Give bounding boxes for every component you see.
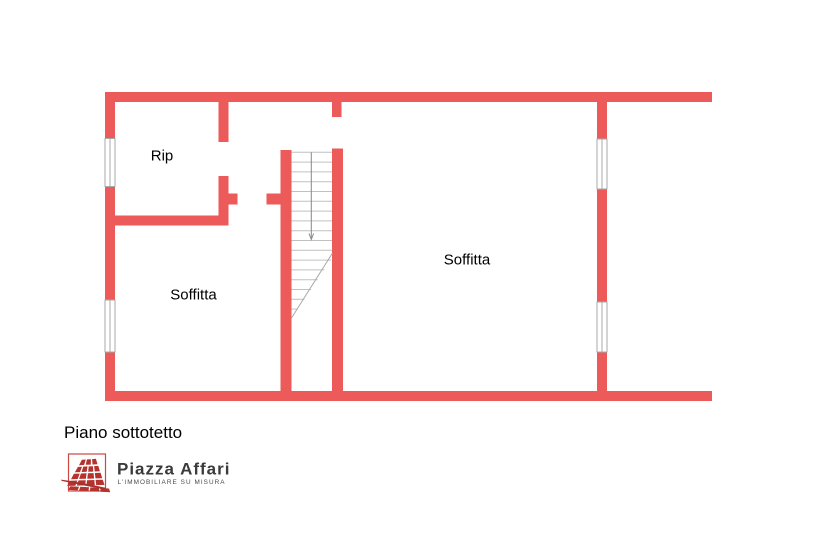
svg-text:L'IMMOBILIARE SU MISURA: L'IMMOBILIARE SU MISURA [118,479,226,486]
svg-text:Piano sottotetto: Piano sottotetto [64,423,182,442]
svg-text:Soffitta: Soffitta [444,252,491,269]
svg-text:Piazza Affari: Piazza Affari [117,460,230,479]
svg-text:Soffitta: Soffitta [170,287,217,304]
svg-text:Rip: Rip [151,148,174,165]
